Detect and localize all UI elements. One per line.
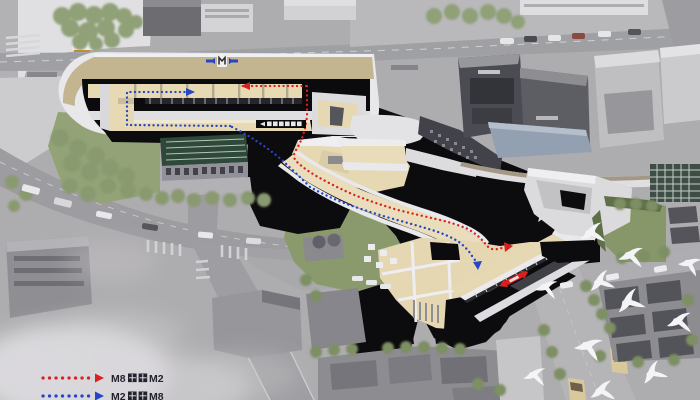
svg-text:M8: M8 [111, 373, 126, 385]
svg-text:M2: M2 [111, 391, 126, 400]
svg-text:M8: M8 [149, 391, 164, 400]
svg-text:M2: M2 [149, 373, 164, 385]
